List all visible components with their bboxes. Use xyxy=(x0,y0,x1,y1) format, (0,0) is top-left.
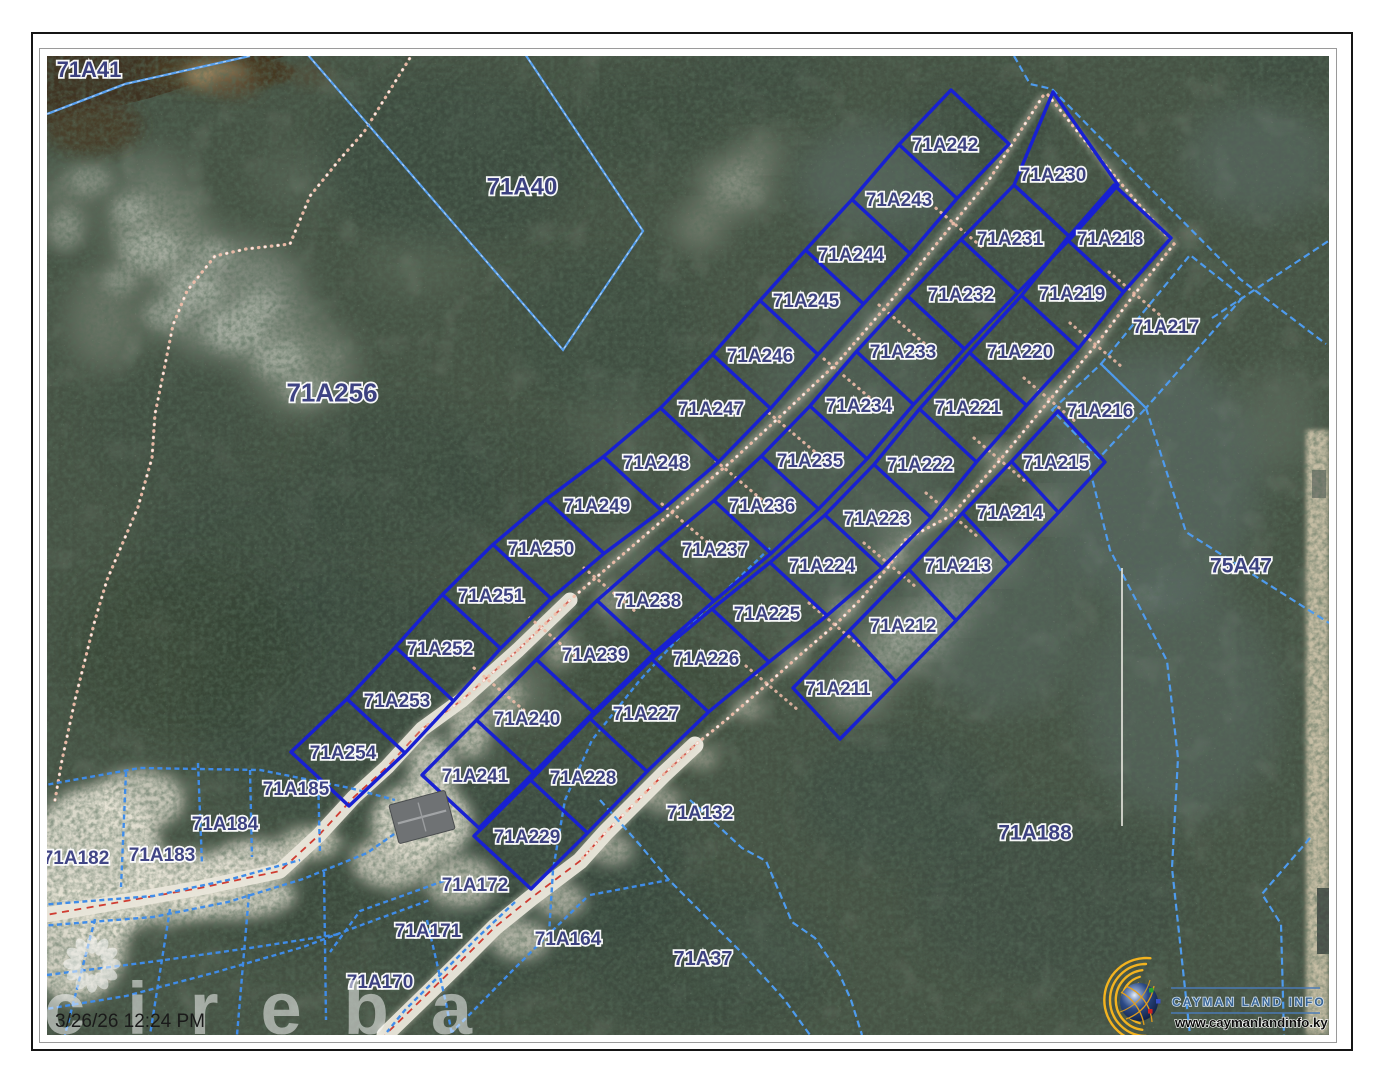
svg-text:71A164: 71A164 xyxy=(535,929,602,950)
svg-text:71A171: 71A171 xyxy=(395,921,462,942)
svg-text:71A234: 71A234 xyxy=(826,396,893,417)
svg-text:71A254: 71A254 xyxy=(310,743,377,764)
svg-text:71A237: 71A237 xyxy=(682,540,749,561)
svg-text:71A230: 71A230 xyxy=(1020,165,1087,186)
svg-text:71A253: 71A253 xyxy=(364,691,431,712)
svg-text:71A40: 71A40 xyxy=(487,174,558,201)
svg-text:71A216: 71A216 xyxy=(1067,401,1134,422)
svg-text:71A184: 71A184 xyxy=(192,814,259,835)
svg-text:71A132: 71A132 xyxy=(667,803,734,824)
svg-text:71A213: 71A213 xyxy=(925,556,992,577)
svg-text:71A228: 71A228 xyxy=(550,768,617,789)
svg-text:71A224: 71A224 xyxy=(789,556,856,577)
svg-text:75A47: 75A47 xyxy=(1210,555,1272,578)
svg-text:71A221: 71A221 xyxy=(935,398,1002,419)
svg-text:71A220: 71A220 xyxy=(987,342,1054,363)
svg-text:71A185: 71A185 xyxy=(263,779,330,800)
svg-text:71A236: 71A236 xyxy=(729,496,796,517)
svg-text:71A218: 71A218 xyxy=(1077,229,1144,250)
svg-text:71A251: 71A251 xyxy=(458,586,525,607)
svg-text:71A231: 71A231 xyxy=(977,229,1044,250)
svg-text:71A225: 71A225 xyxy=(734,604,801,625)
svg-text:71A182: 71A182 xyxy=(47,848,109,869)
svg-text:71A188: 71A188 xyxy=(998,822,1072,845)
svg-text:71A172: 71A172 xyxy=(442,875,509,896)
svg-text:71A227: 71A227 xyxy=(613,704,680,725)
svg-text:71A235: 71A235 xyxy=(777,451,844,472)
svg-text:3/26/26 12:24 PM: 3/26/26 12:24 PM xyxy=(55,1011,205,1032)
svg-text:CAYMAN LAND INFO: CAYMAN LAND INFO xyxy=(1172,995,1326,1009)
svg-text:71A238: 71A238 xyxy=(615,591,682,612)
svg-text:71A233: 71A233 xyxy=(870,342,937,363)
svg-text:71A217: 71A217 xyxy=(1133,317,1200,338)
svg-text:71A223: 71A223 xyxy=(844,509,911,530)
svg-text:71A242: 71A242 xyxy=(912,135,979,156)
svg-text:71A211: 71A211 xyxy=(805,679,871,700)
svg-text:71A249: 71A249 xyxy=(564,496,631,517)
svg-text:71A252: 71A252 xyxy=(407,639,474,660)
svg-text:71A245: 71A245 xyxy=(773,291,840,312)
svg-text:71A248: 71A248 xyxy=(623,453,690,474)
svg-text:71A256: 71A256 xyxy=(286,377,377,407)
svg-text:71A240: 71A240 xyxy=(494,709,561,730)
svg-text:71A246: 71A246 xyxy=(727,346,794,367)
svg-text:71A247: 71A247 xyxy=(678,399,745,420)
svg-text:71A243: 71A243 xyxy=(866,190,933,211)
svg-text:71A222: 71A222 xyxy=(887,455,954,476)
svg-text:71A37: 71A37 xyxy=(674,948,733,970)
svg-text:71A232: 71A232 xyxy=(928,285,995,306)
svg-text:71A241: 71A241 xyxy=(442,766,509,787)
svg-text:71A250: 71A250 xyxy=(508,539,575,560)
svg-text:71A229: 71A229 xyxy=(494,827,561,848)
svg-text:71A226: 71A226 xyxy=(673,649,740,670)
svg-text:71A41: 71A41 xyxy=(57,57,122,82)
svg-text:71A219: 71A219 xyxy=(1039,284,1106,305)
svg-text:71A214: 71A214 xyxy=(977,503,1044,524)
svg-text:71A239: 71A239 xyxy=(562,645,629,666)
svg-text:www.caymanlandinfo.ky: www.caymanlandinfo.ky xyxy=(1174,1015,1328,1030)
svg-text:71A244: 71A244 xyxy=(818,245,885,266)
svg-text:71A215: 71A215 xyxy=(1023,453,1090,474)
svg-text:71A183: 71A183 xyxy=(129,845,196,866)
svg-text:71A212: 71A212 xyxy=(870,616,937,637)
